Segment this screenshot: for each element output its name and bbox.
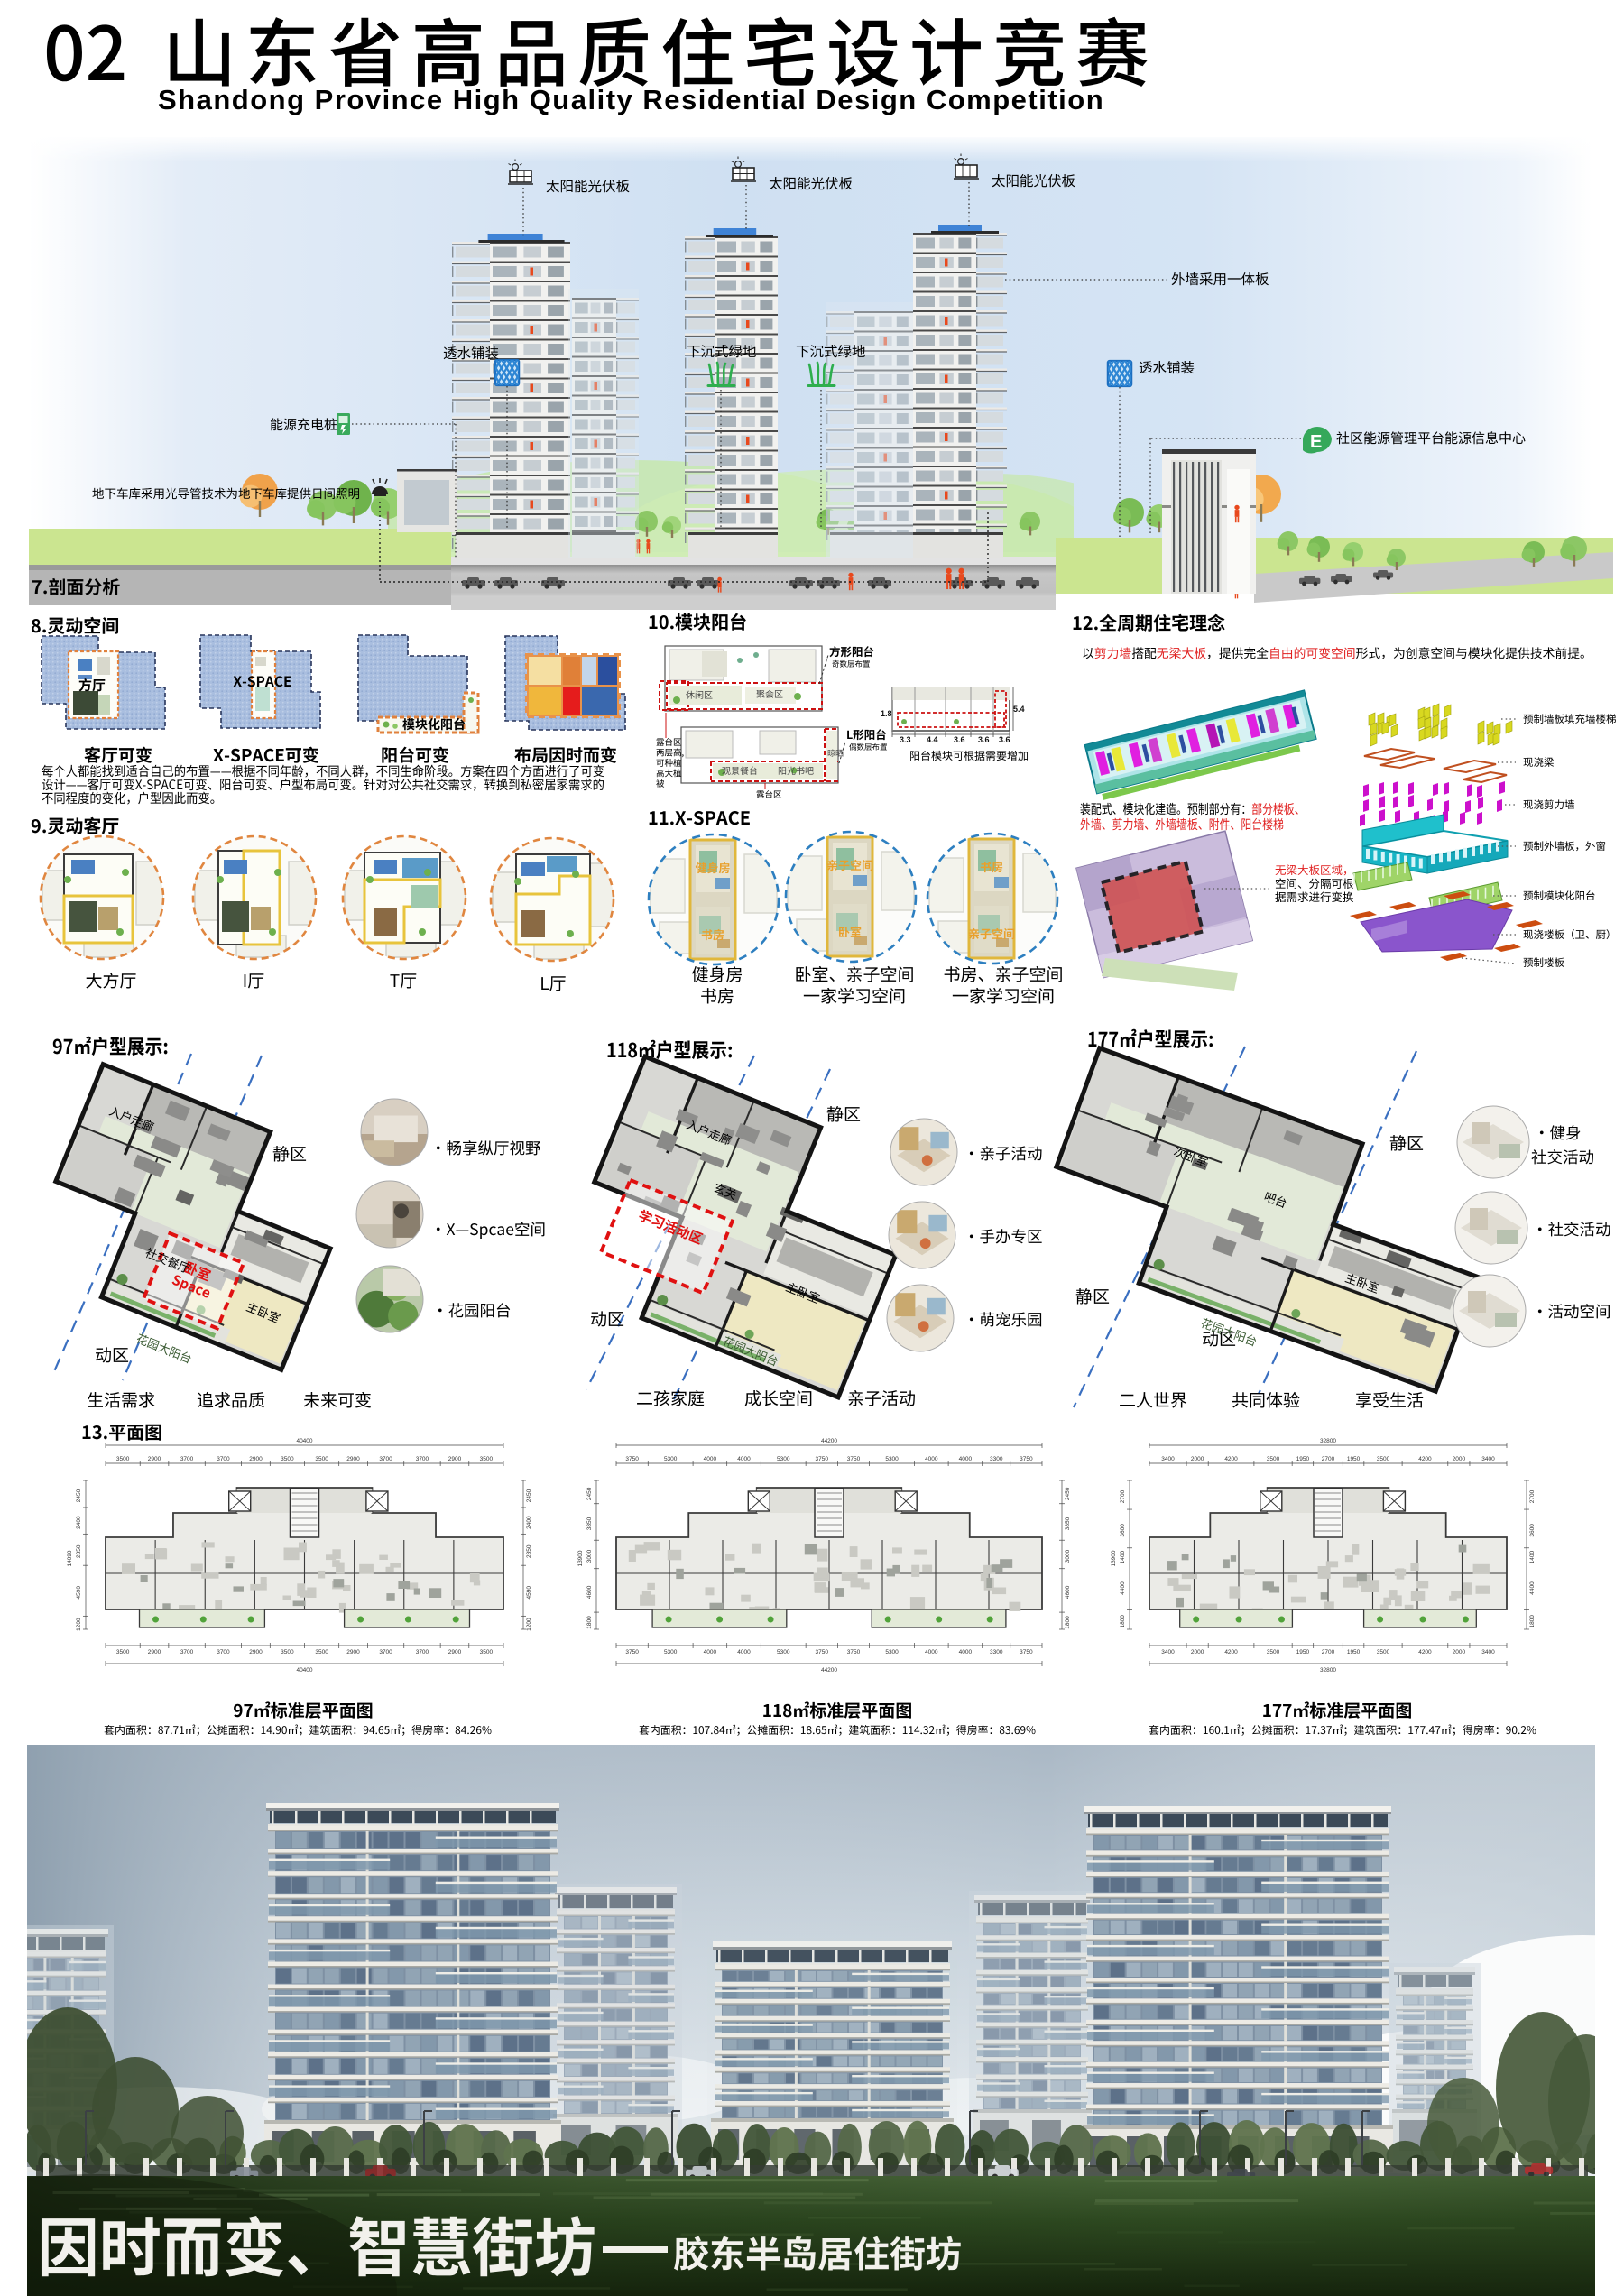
svg-text:3850: 3850: [586, 1517, 593, 1530]
svg-text:3.3: 3.3: [900, 735, 911, 744]
svg-text:2450: 2450: [76, 1489, 82, 1502]
svg-text:1400: 1400: [1529, 1550, 1536, 1563]
svg-text:3300: 3300: [990, 1456, 1003, 1462]
svg-text:2900: 2900: [346, 1456, 360, 1462]
svg-text:5300: 5300: [885, 1456, 899, 1462]
svg-text:3500: 3500: [1267, 1456, 1280, 1462]
svg-text:2400: 2400: [526, 1516, 532, 1529]
svg-text:2000: 2000: [1453, 1456, 1466, 1462]
svg-text:4000: 4000: [737, 1456, 751, 1462]
svg-text:4400: 4400: [1120, 1581, 1126, 1595]
svg-text:3500: 3500: [116, 1456, 130, 1462]
svg-text:1400: 1400: [1120, 1550, 1126, 1563]
svg-text:5300: 5300: [885, 1649, 899, 1655]
svg-text:4000: 4000: [959, 1649, 973, 1655]
svg-text:2700: 2700: [1322, 1456, 1335, 1462]
svg-text:E: E: [1310, 432, 1322, 452]
svg-text:3500: 3500: [1267, 1649, 1280, 1655]
svg-text:4600: 4600: [1065, 1585, 1071, 1599]
svg-text:4000: 4000: [704, 1649, 717, 1655]
svg-text:3700: 3700: [379, 1456, 392, 1462]
svg-text:44200: 44200: [821, 1667, 837, 1674]
svg-text:Shandong Province High Quality: Shandong Province High Quality Residenti…: [158, 84, 1104, 115]
svg-text:2700: 2700: [1120, 1489, 1126, 1503]
svg-text:13900: 13900: [577, 1550, 584, 1566]
svg-text:5300: 5300: [664, 1649, 678, 1655]
svg-text:3.6: 3.6: [999, 735, 1010, 744]
svg-text:1800: 1800: [1529, 1615, 1536, 1628]
svg-text:2450: 2450: [526, 1489, 532, 1502]
svg-text:3700: 3700: [379, 1649, 392, 1655]
svg-text:1800: 1800: [1065, 1616, 1071, 1629]
svg-text:4590: 4590: [76, 1586, 82, 1600]
svg-text:4000: 4000: [737, 1649, 751, 1655]
svg-text:40400: 40400: [296, 1667, 312, 1674]
svg-text:4600: 4600: [586, 1585, 593, 1599]
svg-text:3600: 3600: [1529, 1524, 1536, 1537]
svg-text:4000: 4000: [959, 1456, 973, 1462]
svg-text:2900: 2900: [346, 1649, 360, 1655]
svg-text:3400: 3400: [1481, 1456, 1495, 1462]
svg-text:2450: 2450: [1065, 1487, 1071, 1500]
svg-text:4.4: 4.4: [927, 735, 938, 744]
svg-text:4000: 4000: [925, 1456, 938, 1462]
svg-text:3850: 3850: [1065, 1517, 1071, 1530]
svg-text:44200: 44200: [821, 1438, 837, 1444]
svg-text:1800: 1800: [586, 1616, 593, 1629]
svg-text:3750: 3750: [816, 1649, 829, 1655]
svg-text:2700: 2700: [1322, 1649, 1335, 1655]
svg-text:2900: 2900: [448, 1456, 462, 1462]
svg-text:40400: 40400: [296, 1438, 312, 1444]
svg-text:3000: 3000: [586, 1549, 593, 1563]
svg-text:3500: 3500: [281, 1456, 294, 1462]
svg-text:3000: 3000: [1065, 1549, 1071, 1563]
svg-text:2850: 2850: [76, 1544, 82, 1558]
svg-text:3300: 3300: [990, 1649, 1003, 1655]
svg-text:4000: 4000: [925, 1649, 938, 1655]
svg-text:3700: 3700: [416, 1456, 429, 1462]
svg-text:3500: 3500: [281, 1649, 294, 1655]
svg-text:3400: 3400: [1161, 1456, 1175, 1462]
svg-text:5300: 5300: [777, 1649, 790, 1655]
svg-text:3700: 3700: [180, 1456, 194, 1462]
svg-text:1950: 1950: [1347, 1649, 1361, 1655]
svg-text:3.6: 3.6: [978, 735, 990, 744]
svg-text:2000: 2000: [1453, 1649, 1466, 1655]
svg-text:4200: 4200: [1418, 1456, 1432, 1462]
svg-text:2000: 2000: [1191, 1456, 1204, 1462]
svg-text:5.4: 5.4: [1013, 705, 1025, 714]
svg-text:2850: 2850: [526, 1544, 532, 1558]
svg-text:5300: 5300: [664, 1456, 678, 1462]
svg-text:1950: 1950: [1347, 1456, 1361, 1462]
svg-text:3750: 3750: [1020, 1649, 1033, 1655]
svg-text:3500: 3500: [480, 1649, 494, 1655]
svg-text:3700: 3700: [180, 1649, 194, 1655]
svg-text:3750: 3750: [847, 1649, 861, 1655]
svg-text:3750: 3750: [847, 1456, 861, 1462]
svg-text:2900: 2900: [448, 1649, 462, 1655]
svg-text:1800: 1800: [1120, 1615, 1126, 1628]
svg-text:2900: 2900: [148, 1649, 161, 1655]
svg-text:3700: 3700: [416, 1649, 429, 1655]
svg-text:2900: 2900: [148, 1456, 161, 1462]
svg-text:1200: 1200: [76, 1618, 82, 1631]
svg-text:3.6: 3.6: [954, 735, 965, 744]
svg-text:1.8: 1.8: [881, 709, 892, 718]
svg-text:3700: 3700: [217, 1649, 230, 1655]
svg-text:5300: 5300: [777, 1456, 790, 1462]
svg-text:4400: 4400: [1529, 1581, 1536, 1595]
svg-text:3700: 3700: [217, 1456, 230, 1462]
svg-text:4200: 4200: [1224, 1456, 1238, 1462]
svg-text:14090: 14090: [67, 1550, 73, 1566]
svg-text:1200: 1200: [526, 1618, 532, 1631]
svg-text:3750: 3750: [1020, 1456, 1033, 1462]
svg-text:3400: 3400: [1481, 1649, 1495, 1655]
svg-text:4200: 4200: [1418, 1649, 1432, 1655]
svg-text:3500: 3500: [480, 1456, 494, 1462]
svg-text:2900: 2900: [249, 1456, 263, 1462]
svg-text:4000: 4000: [704, 1456, 717, 1462]
svg-text:13900: 13900: [1111, 1550, 1117, 1566]
svg-text:32800: 32800: [1320, 1438, 1336, 1444]
svg-text:2400: 2400: [76, 1516, 82, 1529]
svg-text:1950: 1950: [1296, 1456, 1310, 1462]
svg-text:32800: 32800: [1320, 1667, 1336, 1674]
svg-text:3400: 3400: [1161, 1649, 1175, 1655]
svg-text:3500: 3500: [116, 1649, 130, 1655]
svg-text:3750: 3750: [625, 1649, 639, 1655]
svg-text:1950: 1950: [1296, 1649, 1310, 1655]
svg-text:3500: 3500: [1377, 1649, 1390, 1655]
svg-text:4200: 4200: [1224, 1649, 1238, 1655]
svg-text:2450: 2450: [586, 1487, 593, 1500]
svg-text:3500: 3500: [1377, 1456, 1390, 1462]
svg-text:3500: 3500: [315, 1649, 328, 1655]
svg-text:3600: 3600: [1120, 1524, 1126, 1537]
svg-text:3500: 3500: [315, 1456, 328, 1462]
svg-text:2700: 2700: [1529, 1489, 1536, 1503]
svg-text:2000: 2000: [1191, 1649, 1204, 1655]
svg-text:4590: 4590: [526, 1586, 532, 1600]
svg-text:2900: 2900: [249, 1649, 263, 1655]
svg-text:3750: 3750: [625, 1456, 639, 1462]
svg-text:3750: 3750: [816, 1456, 829, 1462]
